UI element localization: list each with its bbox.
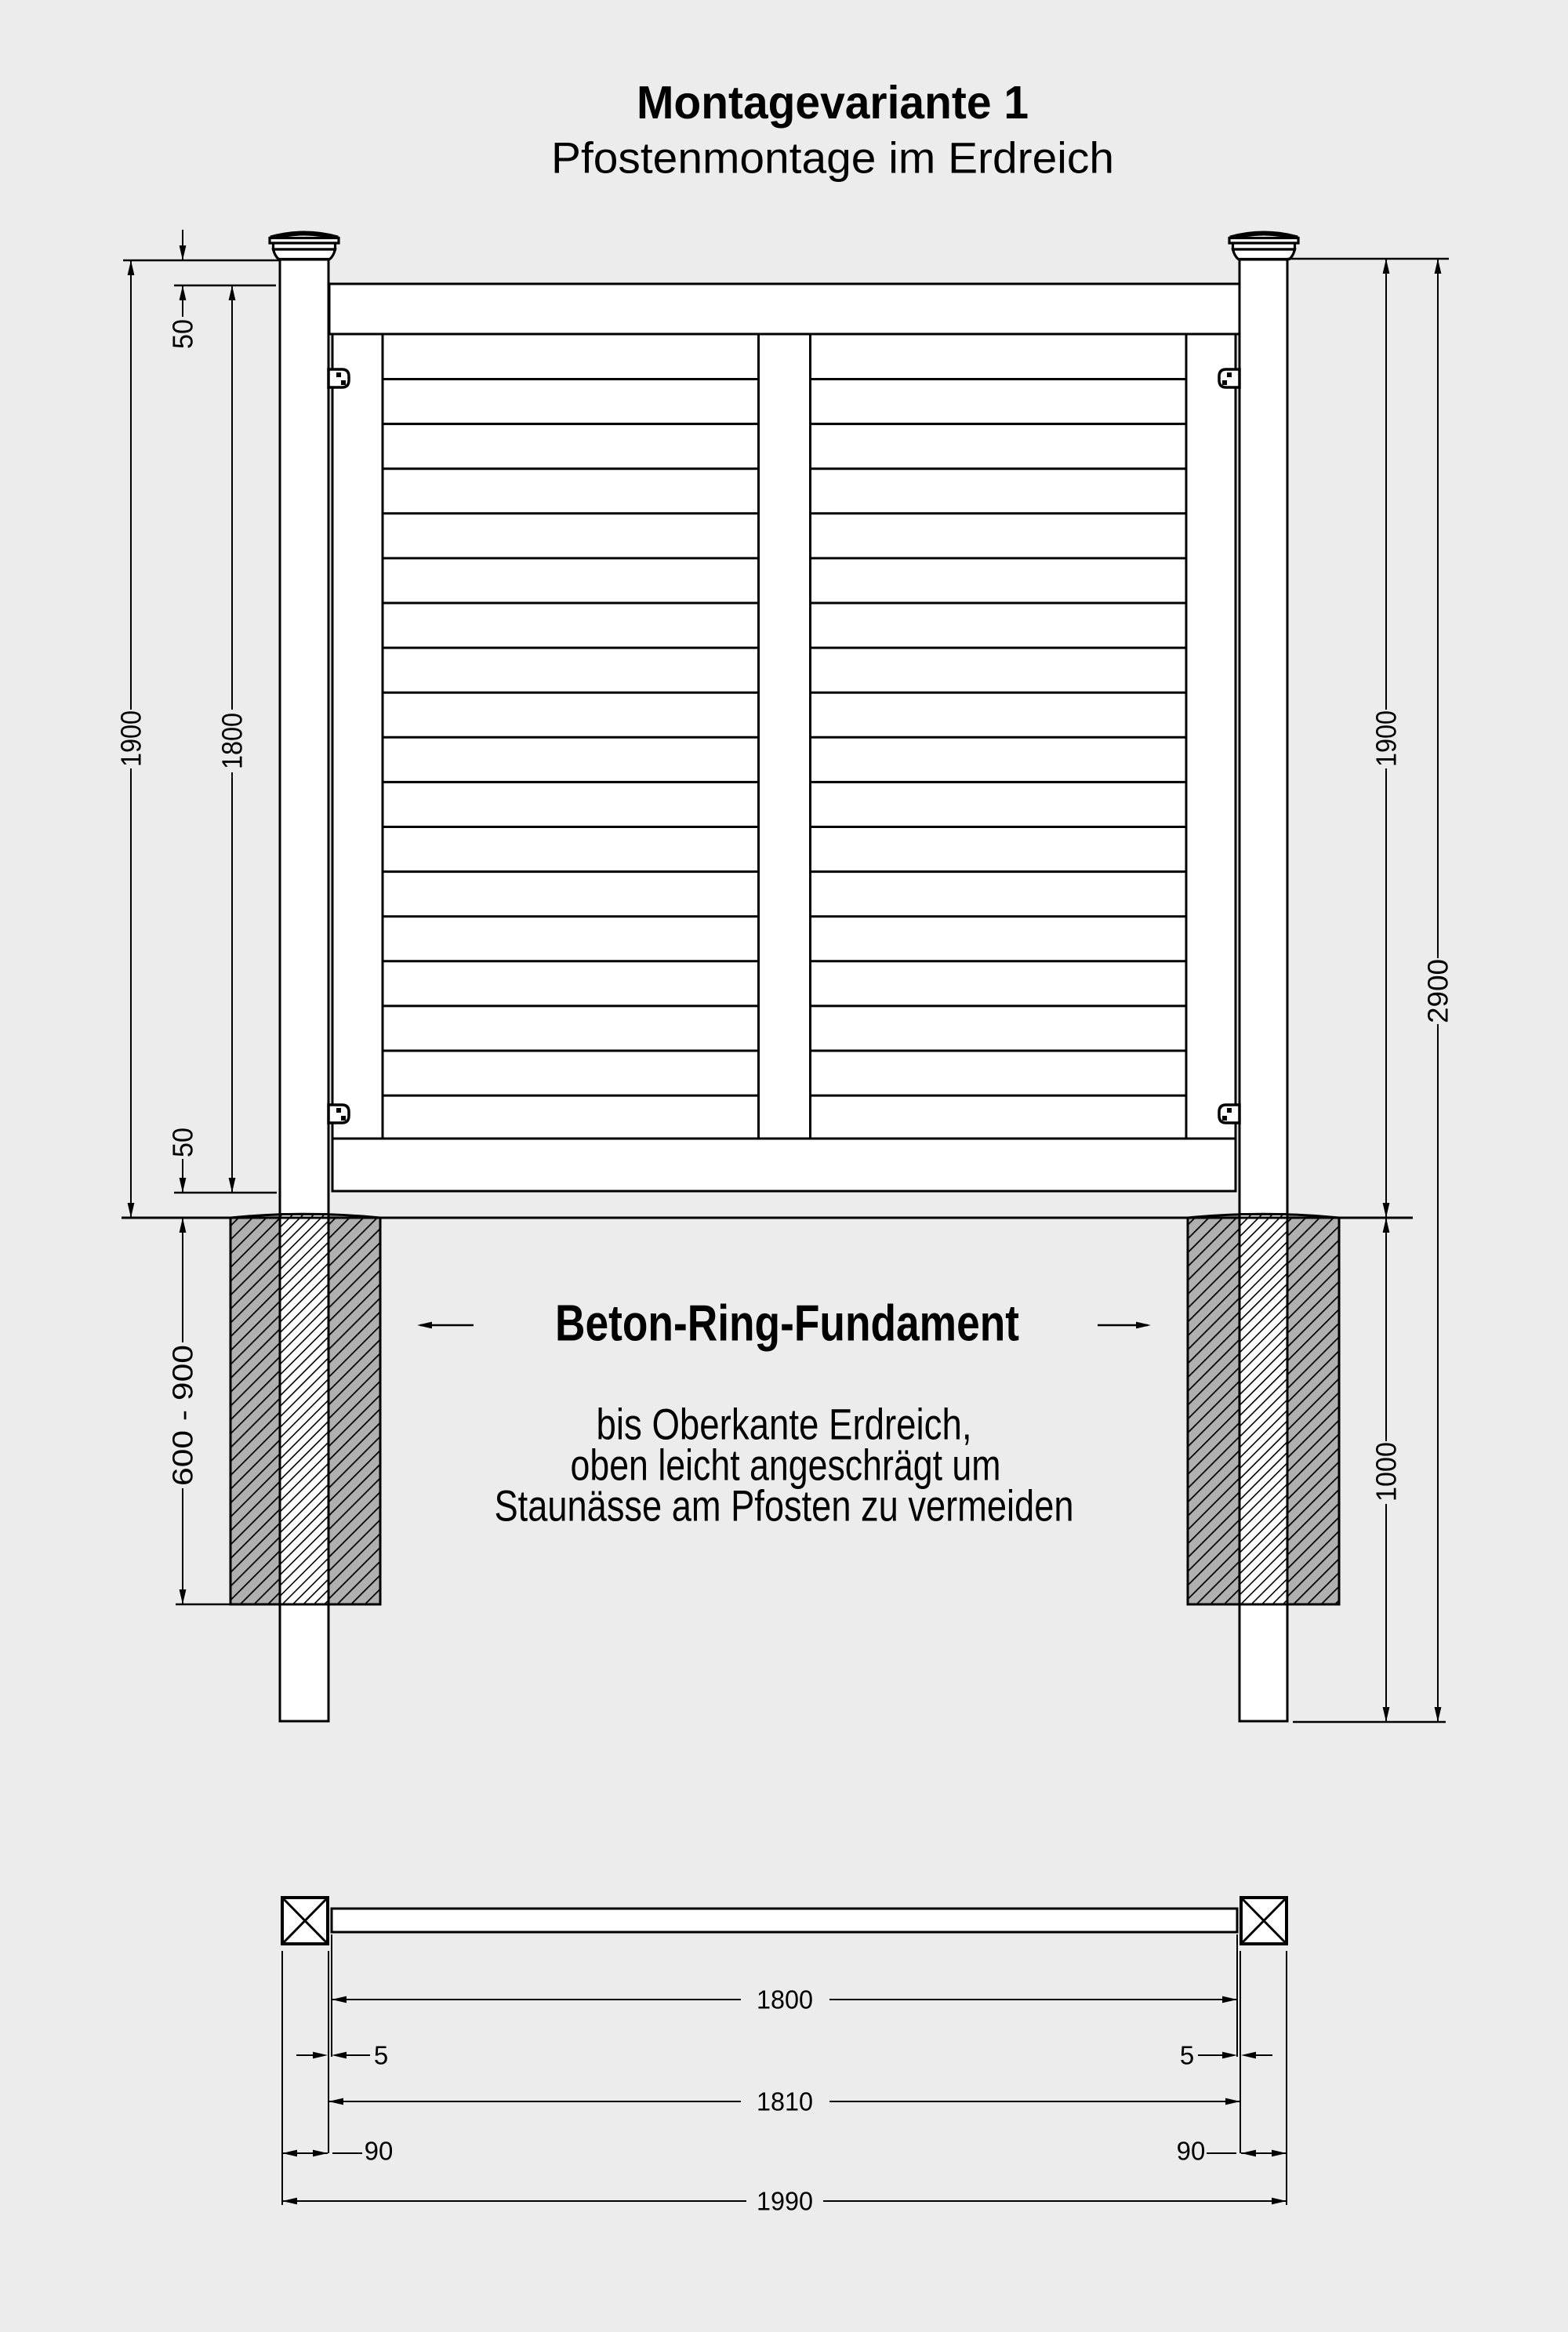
svg-text:1900: 1900 xyxy=(115,710,147,767)
svg-text:Beton-Ring-Fundament: Beton-Ring-Fundament xyxy=(555,1295,1019,1352)
svg-text:1810: 1810 xyxy=(757,2087,813,2116)
svg-text:5: 5 xyxy=(1180,2041,1194,2070)
svg-text:2900: 2900 xyxy=(1422,959,1454,1023)
svg-text:Staunässe am Pfosten zu vermei: Staunässe am Pfosten zu vermeiden xyxy=(495,1481,1074,1531)
svg-text:90: 90 xyxy=(365,2137,394,2166)
svg-text:1800: 1800 xyxy=(757,1985,813,2014)
svg-text:50: 50 xyxy=(167,319,199,349)
svg-text:600 - 900: 600 - 900 xyxy=(167,1345,199,1486)
svg-text:1990: 1990 xyxy=(757,2187,813,2216)
svg-text:1000: 1000 xyxy=(1370,1442,1403,1502)
svg-text:50: 50 xyxy=(167,1128,199,1157)
svg-text:5: 5 xyxy=(374,2041,388,2070)
svg-text:Montagevariante 1: Montagevariante 1 xyxy=(637,77,1029,129)
svg-text:90: 90 xyxy=(1177,2137,1206,2166)
svg-text:1800: 1800 xyxy=(216,713,249,769)
svg-text:Pfostenmontage im Erdreich: Pfostenmontage im Erdreich xyxy=(551,133,1114,183)
svg-text:1900: 1900 xyxy=(1370,710,1403,767)
